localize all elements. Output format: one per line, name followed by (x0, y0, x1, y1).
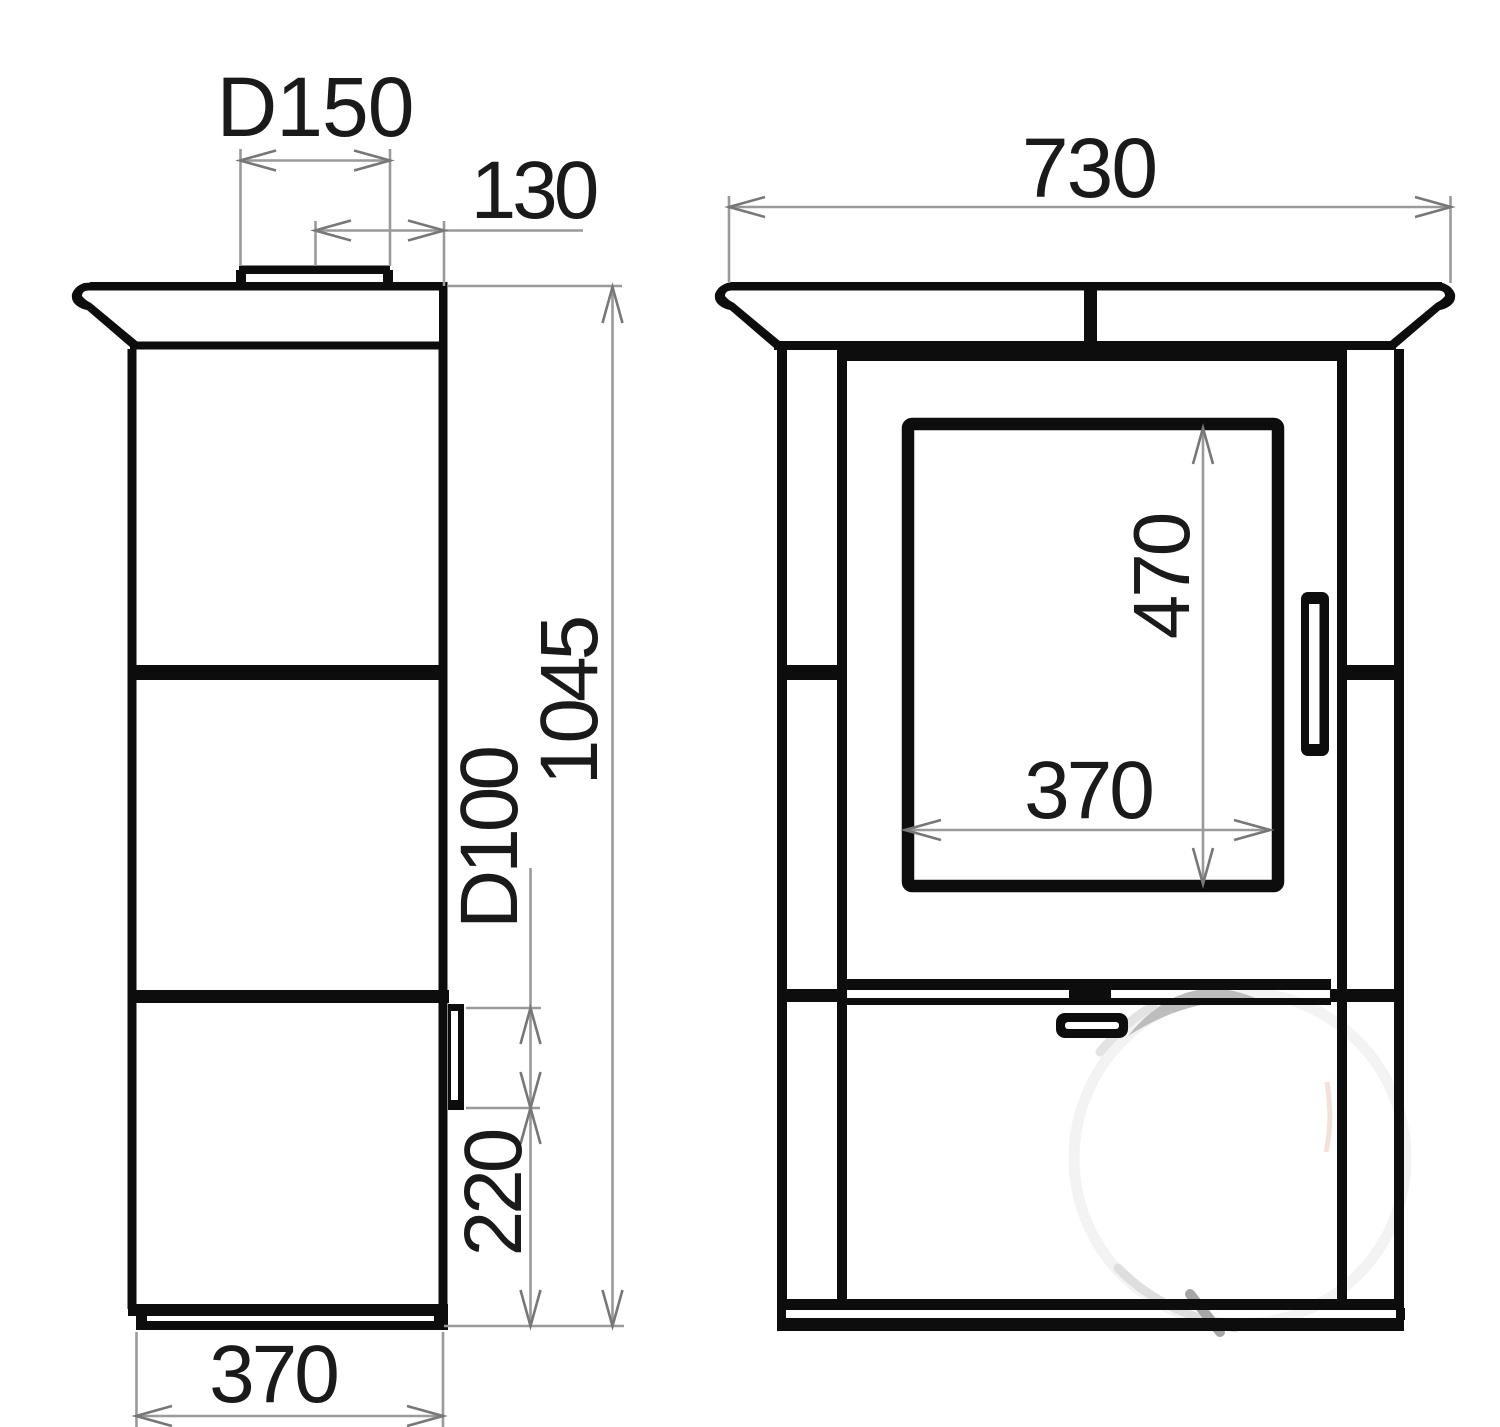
svg-text:1045: 1045 (524, 617, 615, 785)
svg-text:370: 370 (209, 1329, 337, 1420)
svg-text:130: 130 (471, 145, 597, 236)
svg-text:370: 370 (1024, 745, 1152, 836)
svg-text:D100: D100 (444, 748, 535, 929)
svg-text:730: 730 (1022, 121, 1156, 215)
svg-text:D150: D150 (217, 60, 414, 154)
svg-text:470: 470 (1117, 514, 1206, 639)
svg-text:220: 220 (448, 1130, 539, 1256)
